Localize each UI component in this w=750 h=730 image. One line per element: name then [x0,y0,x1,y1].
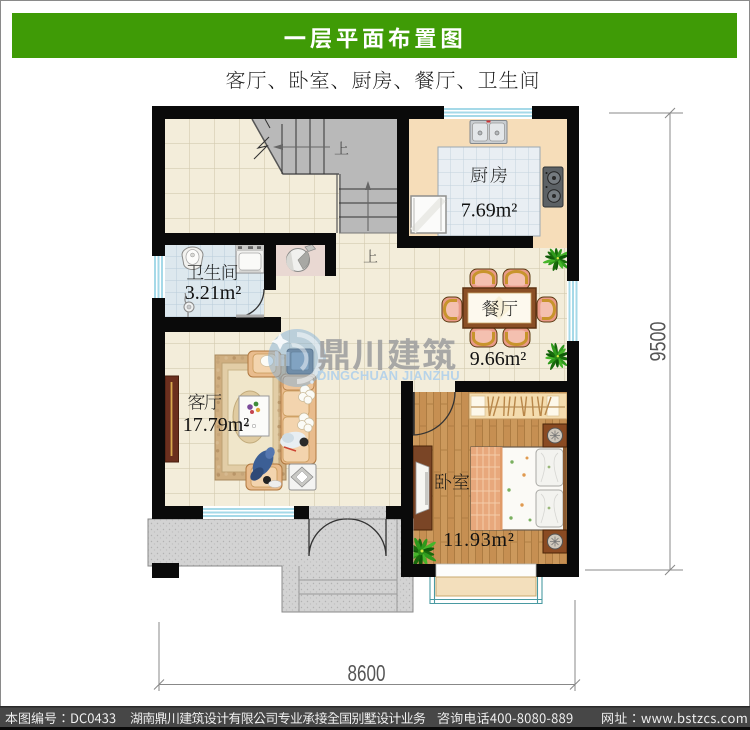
svg-text:9500: 9500 [646,322,671,362]
svg-text:8600: 8600 [348,660,386,686]
svg-text:17.79m²: 17.79m² [183,414,250,436]
svg-text:DINGCHUAN JIANZHU: DINGCHUAN JIANZHU [317,368,460,383]
svg-text:7.69m²: 7.69m² [461,200,518,222]
svg-text:3.21m²: 3.21m² [185,282,242,304]
svg-text:11.93m²: 11.93m² [443,529,514,551]
svg-text:9.66m²: 9.66m² [470,348,527,370]
